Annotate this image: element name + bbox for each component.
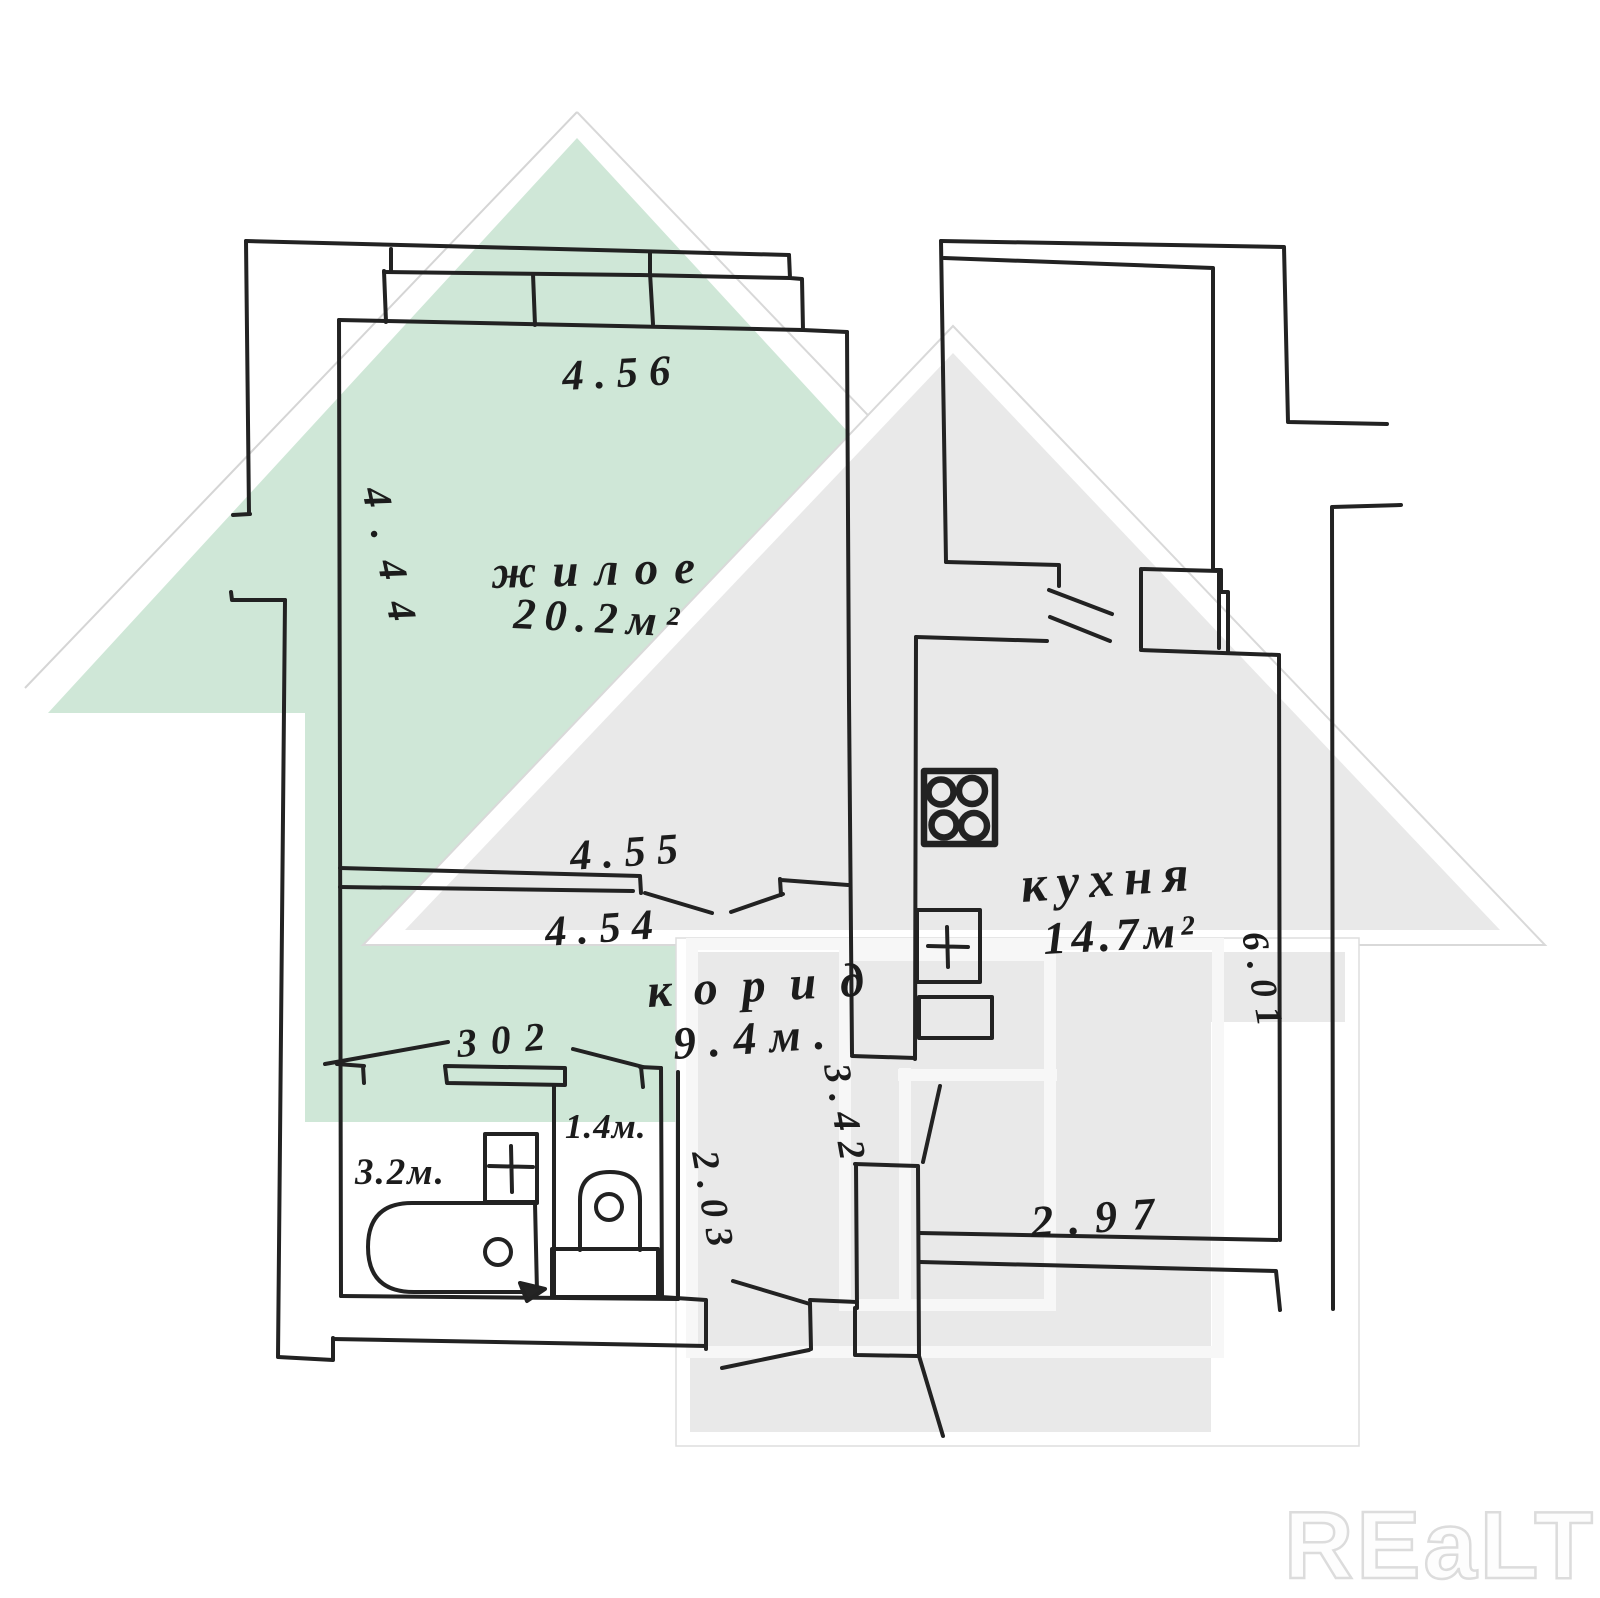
svg-text:3.2м.: 3.2м.	[354, 1152, 446, 1193]
svg-text:4.55: 4.55	[567, 825, 690, 880]
svg-text:4.56: 4.56	[560, 347, 683, 400]
svg-text:302: 302	[454, 1012, 561, 1066]
svg-text:20.2м²: 20.2м²	[511, 589, 689, 647]
svg-text:1.4м.: 1.4м.	[565, 1107, 646, 1146]
svg-text:4.54: 4.54	[542, 901, 665, 956]
svg-text:2.97: 2.97	[1028, 1187, 1171, 1247]
svg-text:REaLT: REaLT	[1284, 1492, 1596, 1598]
svg-text:14.7м²: 14.7м²	[1042, 905, 1200, 964]
